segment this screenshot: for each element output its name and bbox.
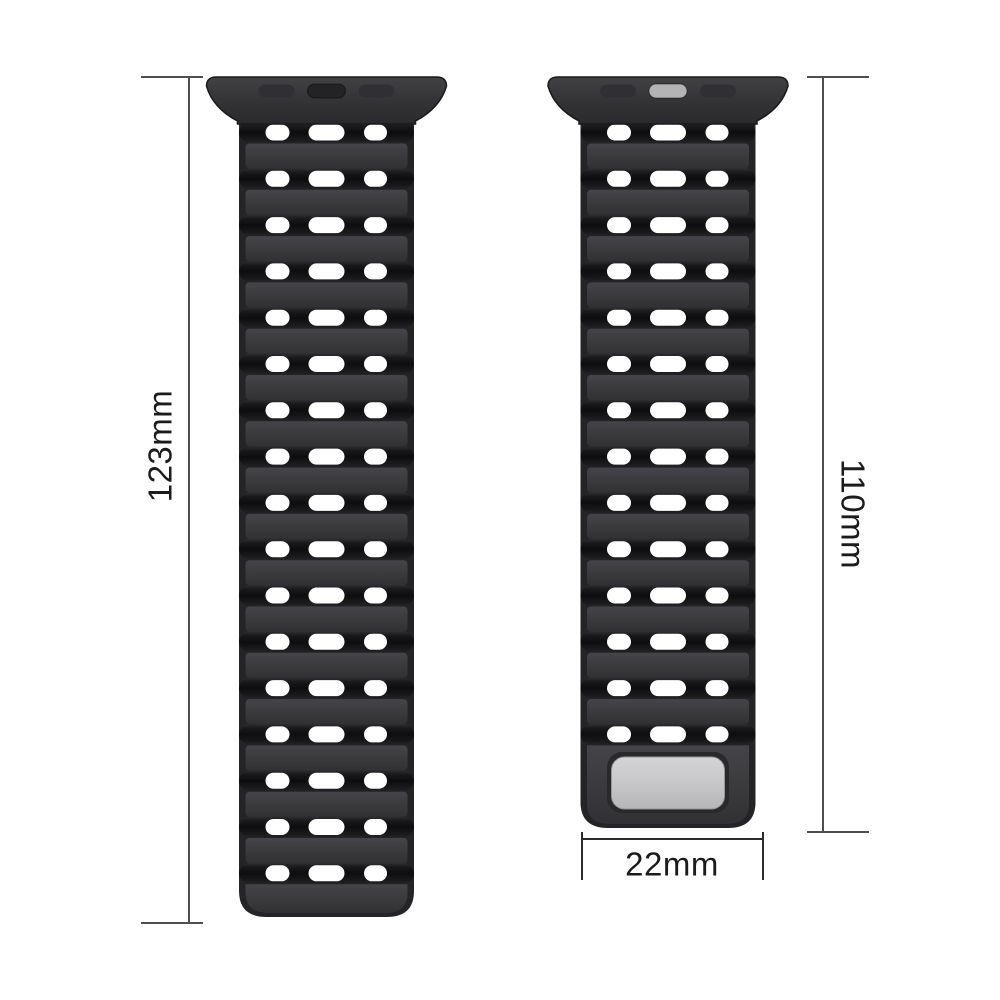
left-watch-strap: [207, 77, 447, 917]
right-dimension-line: [822, 77, 824, 832]
left-dimension-tick-bottom: [141, 922, 203, 924]
product-dimension-figure: 123mm 110mm 22mm: [0, 0, 1000, 1000]
right-dimension-tick-top: [807, 76, 869, 78]
width-dimension-tick-right: [762, 832, 764, 880]
right-strap-length-label: 110mm: [837, 459, 870, 569]
left-dimension-tick-top: [141, 76, 203, 78]
width-dimension-tick-left: [581, 832, 583, 880]
width-dimension-line: [581, 838, 763, 840]
right-dimension-tick-bottom: [807, 831, 869, 833]
strap-width-label: 22mm: [625, 848, 719, 881]
right-watch-strap: [548, 77, 788, 828]
left-dimension-line: [188, 77, 190, 923]
left-strap-length-label: 123mm: [144, 390, 177, 503]
